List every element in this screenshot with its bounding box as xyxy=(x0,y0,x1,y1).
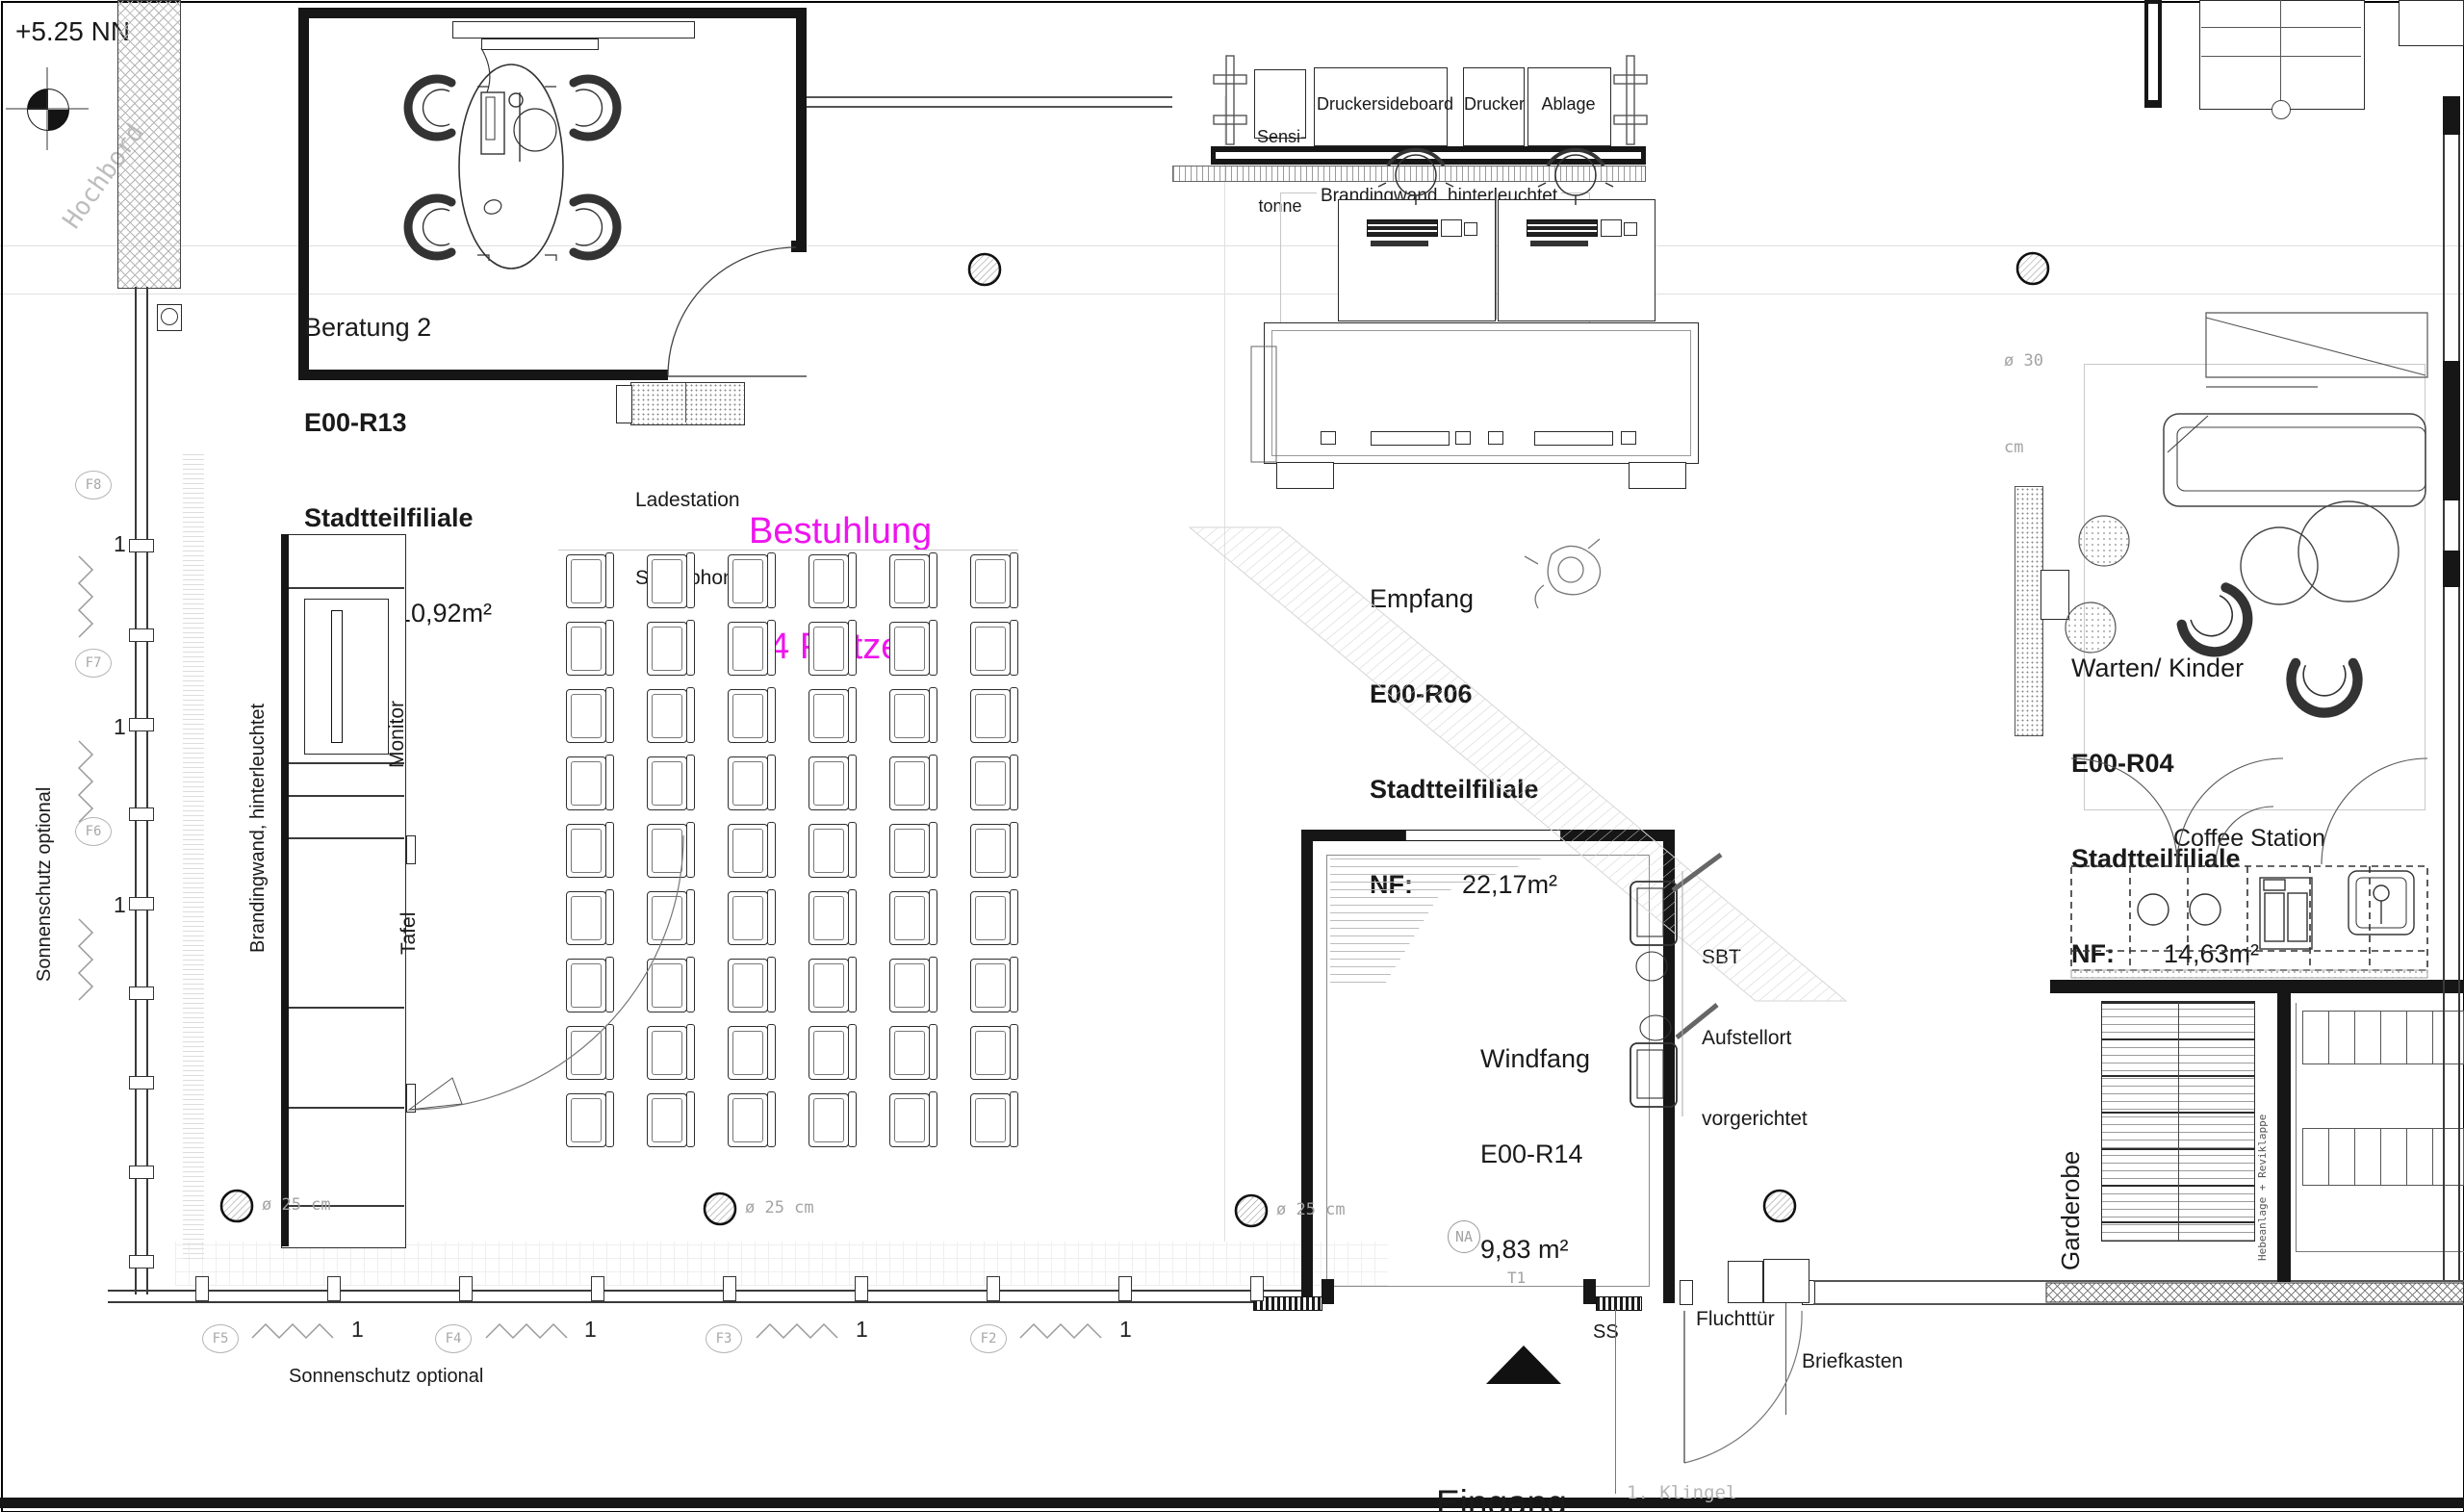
seating-door-swing xyxy=(409,835,683,1110)
survey-cross-icon xyxy=(6,67,89,150)
warten-table-small xyxy=(2241,527,2318,604)
warten-sofa xyxy=(2164,414,2425,506)
fluchttuer-swing xyxy=(1684,1311,1802,1463)
warten-pouf-2 xyxy=(2066,602,2116,653)
sbt-machine-2 xyxy=(1630,1005,1717,1107)
column-circles xyxy=(221,253,2048,1226)
beratung-chair-4 xyxy=(574,198,617,256)
warten-chair-1 xyxy=(2178,584,2261,665)
warten-table-large xyxy=(2298,501,2399,602)
coffee-door-swings xyxy=(2071,758,2427,864)
plan-overlay xyxy=(0,0,2464,1512)
warten-pouf-1 xyxy=(2079,516,2129,566)
beratung-door-swing xyxy=(668,247,796,375)
desk-chair-1 xyxy=(1378,150,1453,205)
warten-wedge-diag xyxy=(2206,318,2425,375)
beratung-chair-2 xyxy=(408,198,451,256)
coffee-counter xyxy=(2071,866,2427,970)
zigzag-b3 xyxy=(757,1324,837,1338)
insulation-band xyxy=(2046,1283,2464,1302)
zigzag-b1 xyxy=(252,1324,333,1338)
steel-column-left xyxy=(1214,56,1246,144)
stair-band xyxy=(1190,527,1846,1001)
warten-chair-2 xyxy=(2292,663,2358,713)
steel-column-right xyxy=(1614,56,1647,144)
counter-left-return xyxy=(1251,346,1276,462)
zigzag-b4 xyxy=(1020,1324,1101,1338)
zigzag-b2 xyxy=(486,1324,567,1338)
person-figure xyxy=(1525,539,1601,608)
beratung-table xyxy=(459,48,563,269)
beratung-chair-1 xyxy=(408,79,451,137)
zigzag-l1 xyxy=(79,556,92,637)
desk-chair-2 xyxy=(1538,150,1613,205)
beratung-chair-3 xyxy=(574,79,617,137)
zigzag-l3 xyxy=(79,919,92,1000)
coffee-fixtures xyxy=(2138,871,2414,949)
coffee-counter-base xyxy=(2071,970,2427,978)
floor-plan-canvas: +5.25 NN Hochbord Beratung 2 E00-R13 Sta… xyxy=(0,0,2464,1512)
zigzag-l2 xyxy=(79,741,92,822)
